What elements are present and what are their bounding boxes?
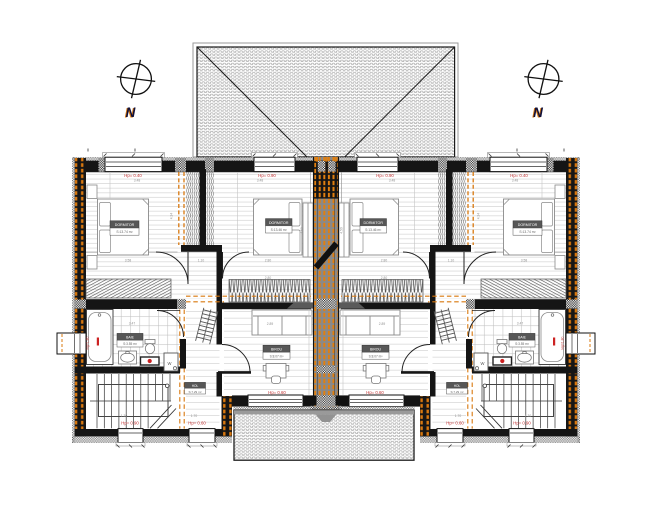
svg-text:1.30: 1.30 <box>525 414 532 418</box>
svg-text:3.48: 3.48 <box>257 178 264 182</box>
svg-text:Hp= 0.90: Hp= 0.90 <box>513 421 531 426</box>
svg-text:S:13.46 m²: S:13.46 m² <box>365 228 382 232</box>
svg-text:S:7.29 m²: S:7.29 m² <box>450 390 463 394</box>
svg-text:Hg=1.80: Hg=1.80 <box>561 336 565 349</box>
svg-text:2.89: 2.89 <box>379 322 386 326</box>
svg-text:S:8.07 m²: S:8.07 m² <box>369 354 383 358</box>
svg-text:W: W <box>481 361 485 366</box>
svg-text:Hp= 0.90: Hp= 0.90 <box>258 173 276 178</box>
svg-text:N: N <box>126 105 136 120</box>
svg-text:4.50: 4.50 <box>340 227 344 234</box>
svg-text:DORMITOR: DORMITOR <box>363 221 383 225</box>
svg-text:HOL: HOL <box>454 384 461 388</box>
svg-text:3.48: 3.48 <box>389 178 396 182</box>
svg-text:S:3.55 m²: S:3.55 m² <box>515 342 529 346</box>
svg-text:3.47: 3.47 <box>129 322 136 326</box>
svg-text:1.10: 1.10 <box>448 259 455 263</box>
svg-text:Hp= 0.40: Hp= 0.40 <box>124 173 142 178</box>
svg-text:1.70: 1.70 <box>191 414 198 418</box>
svg-text:2.80: 2.80 <box>381 276 388 280</box>
svg-text:Hp= 0.60: Hp= 0.60 <box>446 421 464 426</box>
svg-text:S:7.29 m²: S:7.29 m² <box>188 390 201 394</box>
svg-text:BAIE: BAIE <box>126 335 134 339</box>
svg-text:4.34: 4.34 <box>477 213 481 220</box>
svg-text:DORMITOR: DORMITOR <box>518 223 538 227</box>
svg-text:1.10: 1.10 <box>198 259 205 263</box>
svg-text:2.80: 2.80 <box>265 276 272 280</box>
svg-text:1.30: 1.30 <box>121 414 128 418</box>
svg-text:BIROU: BIROU <box>370 347 382 351</box>
svg-text:Hp= 0.60: Hp= 0.60 <box>268 390 286 395</box>
svg-text:4.50: 4.50 <box>300 227 304 234</box>
svg-text:2.89: 2.89 <box>267 322 274 326</box>
svg-text:S:13.74 m²: S:13.74 m² <box>116 230 133 234</box>
svg-text:HOL: HOL <box>192 384 199 388</box>
svg-text:DORMITOR: DORMITOR <box>115 223 135 227</box>
svg-text:Hp= 0.40: Hp= 0.40 <box>510 173 528 178</box>
svg-text:N: N <box>533 105 543 120</box>
svg-text:3.48: 3.48 <box>512 178 519 182</box>
svg-text:2.80: 2.80 <box>381 259 388 263</box>
svg-text:W: W <box>168 361 172 366</box>
svg-text:Hg=1.80: Hg=1.80 <box>86 336 90 349</box>
svg-text:Hp= 0.60: Hp= 0.60 <box>188 421 206 426</box>
svg-text:S:13.46 m²: S:13.46 m² <box>271 228 288 232</box>
svg-text:2.80: 2.80 <box>265 259 272 263</box>
svg-text:4.34: 4.34 <box>170 213 174 220</box>
svg-text:S:13.74 m²: S:13.74 m² <box>519 230 536 234</box>
svg-text:3.48: 3.48 <box>134 178 141 182</box>
svg-text:DORMITOR: DORMITOR <box>269 221 289 225</box>
svg-text:3.58: 3.58 <box>521 259 528 263</box>
svg-text:Hp= 0.90: Hp= 0.90 <box>121 421 139 426</box>
svg-text:BIROU: BIROU <box>271 347 283 351</box>
svg-text:S:8.07 m²: S:8.07 m² <box>270 354 284 358</box>
svg-text:1.70: 1.70 <box>455 414 462 418</box>
svg-text:3.47: 3.47 <box>517 322 524 326</box>
svg-text:Hp= 0.60: Hp= 0.60 <box>366 390 384 395</box>
svg-text:S:3.55 m²: S:3.55 m² <box>123 342 137 346</box>
svg-text:BAIE: BAIE <box>518 335 526 339</box>
svg-text:3.58: 3.58 <box>125 259 132 263</box>
svg-text:Hp= 0.90: Hp= 0.90 <box>376 173 394 178</box>
